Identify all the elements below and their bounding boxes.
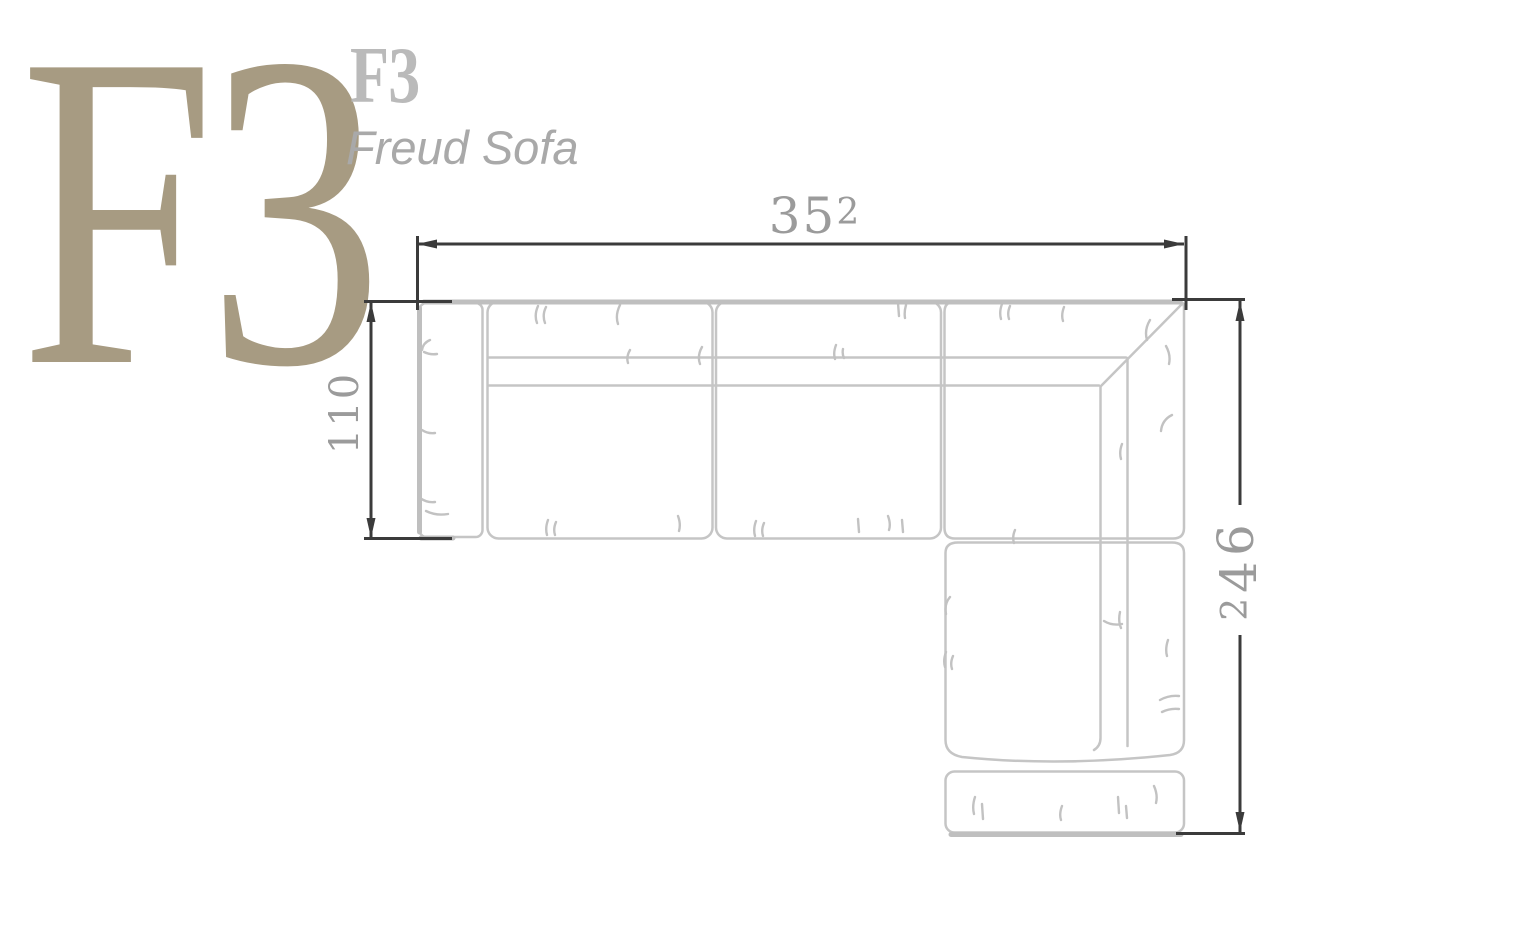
seat-cushion-2	[716, 302, 941, 539]
dim-length-digit: 2	[1215, 593, 1256, 621]
chaise-seat	[946, 543, 1185, 762]
bottom-armrest	[946, 772, 1185, 833]
outline-accents	[420, 302, 1182, 835]
corner-backrest-vertical-1	[1094, 387, 1101, 750]
dim-width-digit: 5	[803, 187, 837, 245]
dimension-width	[417, 236, 1186, 310]
dim-length-arrow-top	[1236, 301, 1245, 321]
sofa-outline	[420, 302, 1185, 835]
dim-depth-arrow-top	[367, 302, 376, 322]
dim-depth-arrow-bottom	[367, 518, 376, 538]
dim-length-digit: 4	[1210, 556, 1268, 593]
dim-width-arrow-left	[417, 240, 437, 249]
sofa-plan-drawing	[0, 0, 1516, 934]
dim-width-arrow-right	[1164, 240, 1184, 249]
dim-length-digit: 6	[1207, 519, 1265, 556]
seat-cushion-1	[488, 302, 713, 539]
spec-sheet-page: F3 F3 Freud Sofa	[0, 0, 1516, 934]
dim-width-digit: 2	[836, 192, 861, 233]
corner-diagonal	[1101, 304, 1182, 386]
dim-width-digit: 3	[769, 187, 803, 245]
dim-width-label: 352	[735, 188, 895, 238]
stitch-marks	[420, 303, 1179, 820]
dim-length-label: 246	[1212, 490, 1260, 650]
dim-length-arrow-bottom	[1236, 812, 1245, 832]
dimension-depth	[364, 301, 452, 539]
dim-depth-label: 110	[323, 333, 367, 493]
